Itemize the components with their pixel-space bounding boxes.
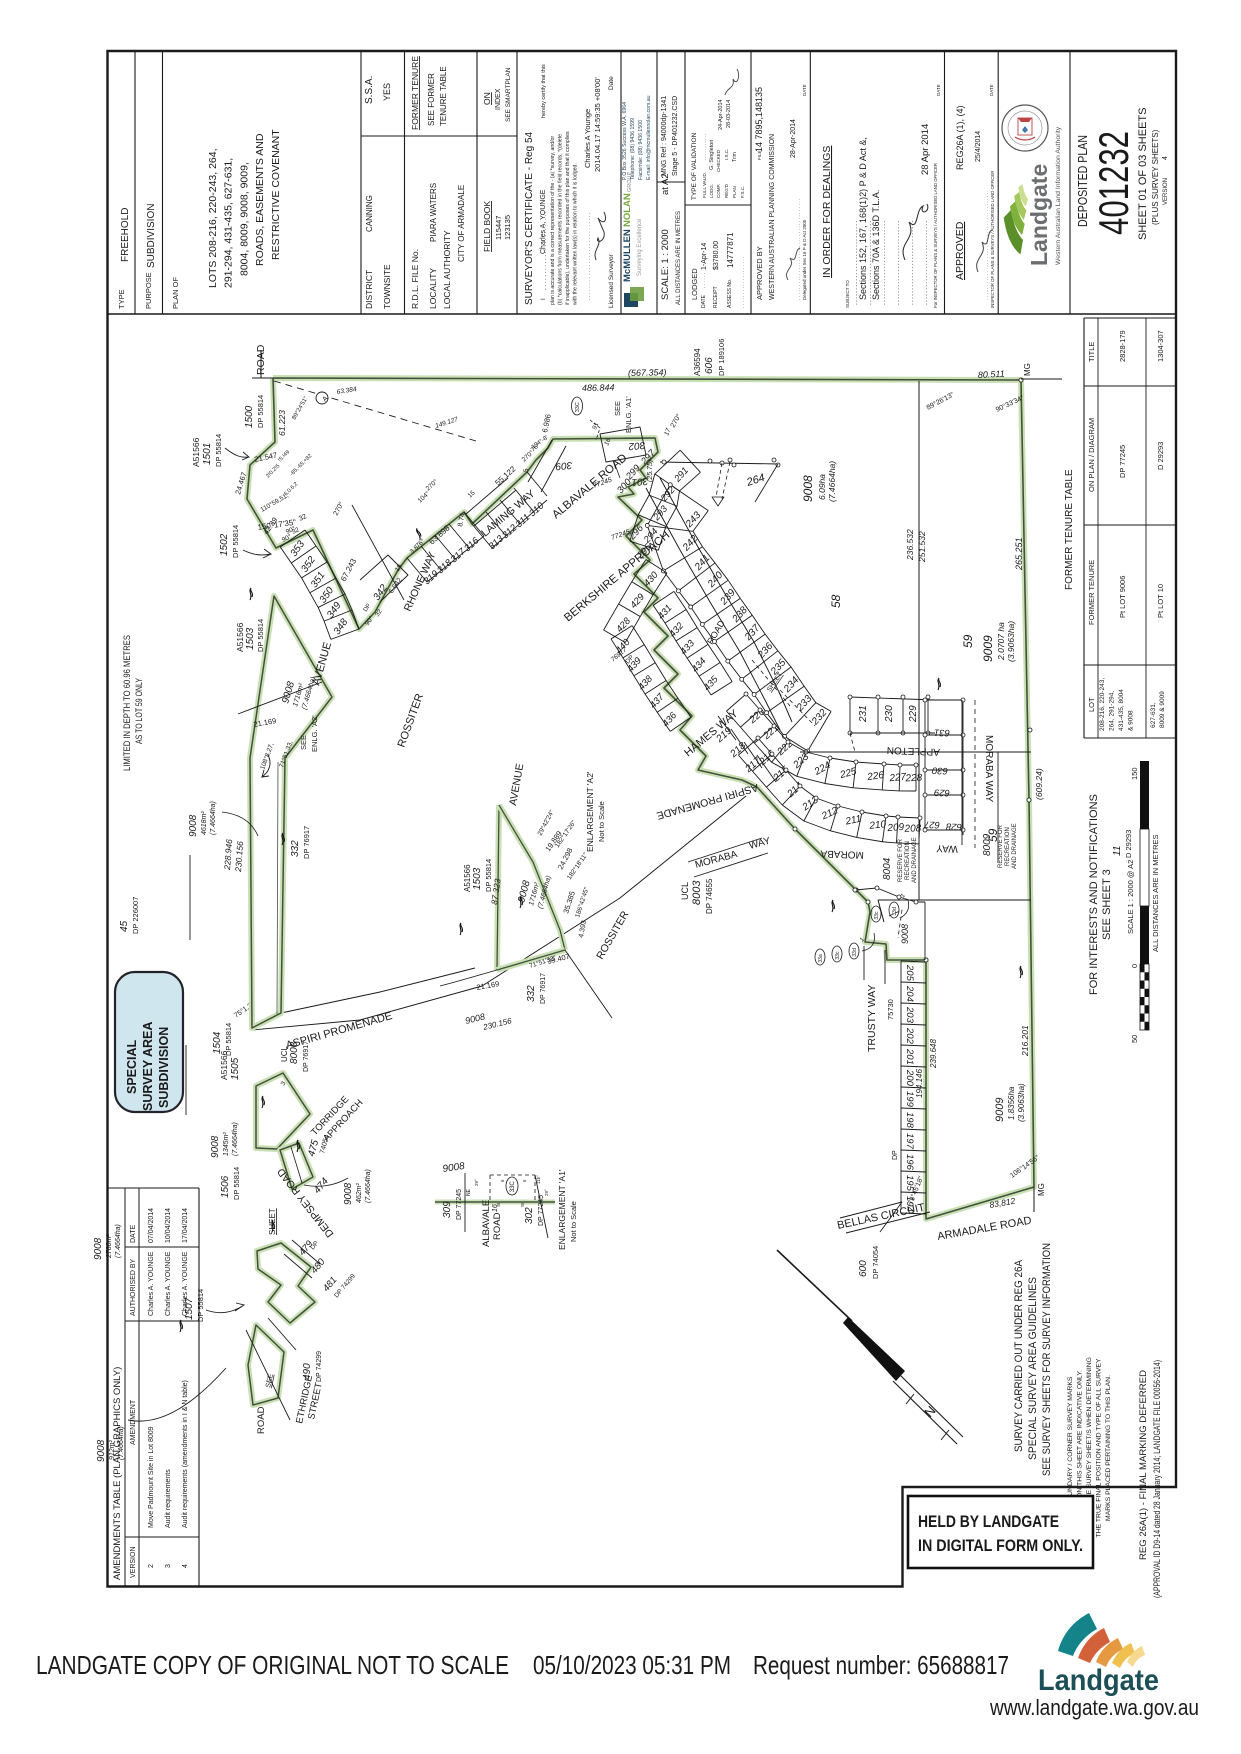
svg-text:FORMER TENURE: FORMER TENURE [410,56,420,130]
svg-text:if inapplicable), undertaken f: if inapplicable), undertaken for the pur… [565,131,571,305]
svg-text:07/04/2014: 07/04/2014 [148,1208,155,1243]
svg-text:33d: 33d [892,907,898,916]
svg-text:33C: 33C [510,1181,516,1193]
svg-text:401232: 401232 [1090,131,1137,235]
svg-text:(b) *calculations from measur: (b) *calculations from measurements reco… [558,134,564,305]
svg-text:SEE SMARTPLAN: SEE SMARTPLAN [505,67,512,122]
svg-text:1.8356ha: 1.8356ha [1007,1086,1016,1120]
svg-text:RESERVE FOR: RESERVE FOR [898,838,904,882]
svg-text:DP 77245: DP 77245 [1118,445,1127,478]
svg-text:Not to Scale: Not to Scale [569,1201,578,1242]
svg-text:209: 209 [886,822,905,834]
svg-text:265.251: 265.251 [1014,537,1024,571]
svg-text:THE TRUE FINAL POSITION AND TY: THE TRUE FINAL POSITION AND TYPE OF ALL … [1096,1358,1103,1537]
svg-text:hereby certify that this: hereby certify that this [541,64,547,118]
svg-text:Landgate: Landgate [1026,164,1052,266]
svg-text:204: 204 [904,985,915,1002]
svg-text:332: 332 [526,985,537,1002]
svg-text:D 29293: D 29293 [1124,830,1133,858]
svg-text:Licensed Surveyor: Licensed Surveyor [608,253,615,308]
svg-text:25/4/2014: 25/4/2014 [975,131,982,162]
svg-text:AND DRAINAGE: AND DRAINAGE [1012,823,1018,869]
svg-text:(APPROVAL ID D9-14 dated 28 Ja: (APPROVAL ID D9-14 dated 28 January 2014… [1152,1360,1162,1598]
svg-text:SEE: SEE [613,401,622,416]
svg-text:4618m²: 4618m² [201,811,208,835]
svg-text:DP 74054: DP 74054 [871,1246,880,1279]
svg-text:ASSESS No.: ASSESS No. [727,279,733,308]
svg-text:PIARA WATERS: PIARA WATERS [429,183,438,242]
svg-text:ENLARGEMENT 'A2': ENLARGEMENT 'A2' [585,771,595,852]
svg-text:LIMITED IN DEPTH TO 60.96 METR: LIMITED IN DEPTH TO 60.96 METRES [122,635,132,771]
svg-text:28 Apr 2014: 28 Apr 2014 [920,124,931,175]
svg-text:AUTHORISED BY: AUTHORISED BY [130,1258,137,1316]
svg-text:ENLG. 'A1': ENLG. 'A1' [624,396,633,433]
svg-text:APPROVED: APPROVED [954,221,966,280]
svg-text:8009 & 9009: 8009 & 9009 [1159,691,1166,728]
svg-text:431-435, 8004: 431-435, 8004 [1118,689,1125,731]
svg-text:DATE: DATE [802,84,807,96]
svg-text:IN DIGITAL FORM ONLY.: IN DIGITAL FORM ONLY. [918,1537,1083,1555]
svg-text:Charles A. YOUNGE: Charles A. YOUNGE [148,1251,155,1316]
svg-text:14 7895,148135: 14 7895,148135 [754,87,764,152]
svg-text:DP 189106: DP 189106 [717,339,726,376]
svg-text:Audit requirements: Audit requirements [165,1469,172,1528]
svg-text:210: 210 [868,819,887,832]
svg-text:plan is accurate and is a corr: plan is accurate and is a correct repres… [550,136,556,305]
svg-text:199: 199 [904,1091,915,1108]
svg-text:WAY: WAY [936,842,958,854]
svg-text:SURVEYOR'S CERTIFICATE - Reg 5: SURVEYOR'S CERTIFICATE - Reg 54 [524,131,535,305]
svg-text:LOCAL AUTHORITY: LOCAL AUTHORITY [442,230,452,309]
svg-text:24-Apr-2014: 24-Apr-2014 [718,99,724,130]
svg-text:45: 45 [119,920,130,932]
svg-text:REG26A (1), (4): REG26A (1), (4) [955,105,965,170]
svg-text:A51566: A51566 [219,1050,229,1080]
svg-text:& 9008: & 9008 [1128,710,1135,731]
svg-text:SURVEY CARRIED OUT UNDER REG 2: SURVEY CARRIED OUT UNDER REG 26A [1013,1259,1025,1452]
svg-text:FIELD BOOK: FIELD BOOK [482,201,492,252]
svg-text:LANDGATE COPY OF ORIGINAL NOT: LANDGATE COPY OF ORIGINAL NOT TO SCALE [36,1650,509,1680]
svg-text:AMENDMENTS TABLE (PLAN GRAPHI: AMENDMENTS TABLE (PLAN GRAPHICS ONLY) [112,1367,123,1580]
svg-text:SI: SI [520,1203,525,1207]
svg-text:291-294, 431-435, 627-631,: 291-294, 431-435, 627-631, [223,158,235,288]
svg-text:627-631,: 627-631, [1150,702,1157,728]
svg-text:. . . . . . . . . . . . . . .: . . . . . . . . . . . . . . . . . . . . … [586,212,592,300]
svg-text:ON PLAN / DIAGRAM: ON PLAN / DIAGRAM [1087,418,1096,492]
svg-text:DP 76917: DP 76917 [540,973,547,1004]
svg-text:For INSPECTOR OF PLANS & SURVE: For INSPECTOR OF PLANS & SURVEYS / AUTHO… [933,163,938,308]
svg-text:912m²: 912m² [109,1439,116,1460]
svg-text:208: 208 [903,823,921,835]
svg-text:FORMER TENURE: FORMER TENURE [1087,560,1096,625]
svg-text:251.532: 251.532 [917,531,927,563]
svg-text:RECREATION: RECREATION [1005,827,1011,866]
svg-text:UCL: UCL [280,1045,289,1062]
svg-text:$3780.00: $3780.00 [713,241,720,270]
svg-text:462m²: 462m² [356,1182,363,1203]
svg-text:DATE: DATE [989,84,994,96]
svg-text:D 29293: D 29293 [1156,442,1165,470]
svg-text:2: 2 [148,1564,155,1568]
svg-text:PLAN: PLAN [732,186,737,198]
svg-text:I.S.C.: I.S.C. [724,149,729,160]
svg-text:A51566: A51566 [191,437,201,467]
svg-text:SUBDIVISION: SUBDIVISION [146,204,157,268]
svg-text:Surveying Excellence: Surveying Excellence [637,218,643,276]
svg-text:1502: 1502 [219,533,230,556]
svg-text:2014.04.17 14:59:35 +08'00': 2014.04.17 14:59:35 +08'00' [593,77,602,172]
svg-text:www.landgate.wa.gov.au: www.landgate.wa.gov.au [989,1695,1199,1720]
svg-text:(7.4664ha): (7.4664ha) [827,461,837,502]
svg-text:14777871: 14777871 [726,232,735,268]
svg-text:600: 600 [858,1260,869,1277]
svg-text:Charles A. YOUNGE: Charles A. YOUNGE [540,189,547,254]
svg-text:1500: 1500 [244,405,255,428]
svg-text:LOT: LOT [1087,697,1096,712]
svg-text:ON: ON [482,92,492,105]
svg-text:(PLUS SURVEY SHEETS): (PLUS SURVEY SHEETS) [1151,129,1160,225]
svg-text:Move Padmount Site in Lot 8009: Move Padmount Site in Lot 8009 [148,1426,155,1528]
svg-text:PURPOSE: PURPOSE [144,272,153,309]
svg-text:DP 226007: DP 226007 [131,897,140,934]
svg-text:MORABA WAY: MORABA WAY [983,735,994,803]
svg-text:RECEIPT: RECEIPT [713,286,719,308]
svg-text:DP 55814: DP 55814 [231,525,240,558]
svg-text:8008: 8008 [289,1041,300,1064]
svg-text:486.844: 486.844 [582,382,615,393]
svg-text:28-Apr-2014: 28-Apr-2014 [790,119,797,158]
svg-text:200: 200 [904,1069,915,1087]
svg-text:SEE SURVEY SHEETS FOR SURVEY I: SEE SURVEY SHEETS FOR SURVEY INFORMATION [1041,1243,1053,1476]
svg-text:205: 205 [904,964,915,982]
svg-text:IN ORDER FOR DEALINGS: IN ORDER FOR DEALINGS [821,146,833,278]
svg-text:58: 58 [829,594,843,608]
svg-text:309: 309 [555,459,573,471]
svg-text:9008: 9008 [210,1135,221,1158]
svg-text:DP 55814: DP 55814 [196,1289,205,1322]
svg-text:DP 55814: DP 55814 [214,434,223,467]
svg-text:302: 302 [628,439,646,451]
svg-text:SHEET 01 OF 03 SHEETS: SHEET 01 OF 03 SHEETS [1137,108,1149,240]
svg-text:1501: 1501 [202,443,213,465]
svg-text:630: 630 [931,764,948,776]
svg-text:INSPECTOR OF PLANS & SURVEYS /: INSPECTOR OF PLANS & SURVEYS / AUTHORISE… [990,171,995,308]
svg-text:239.648: 239.648 [929,1039,938,1069]
svg-text:Pt LOT 9006: Pt LOT 9006 [1118,576,1127,618]
svg-text:(567.354): (567.354) [628,367,667,378]
svg-text:AND DRAINAGE: AND DRAINAGE [912,837,918,883]
svg-text:Trim: Trim [732,152,738,162]
svg-text:6.09ha: 6.09ha [817,474,827,500]
svg-text:264, 291-294,: 264, 291-294, [1109,691,1116,731]
svg-text:8004, 8009, 9008, 9009,: 8004, 8009, 9008, 9009, [238,162,250,276]
svg-text:228: 228 [904,773,923,785]
svg-text:CANNING: CANNING [365,195,374,232]
svg-text:DP 76917: DP 76917 [302,826,311,859]
svg-text:TYPE: TYPE [117,289,126,309]
svg-text:DP 77245: DP 77245 [456,1189,463,1220]
svg-text:ALL DISTANCES ARE IN METRES: ALL DISTANCES ARE IN METRES [1151,834,1160,952]
svg-text:4: 4 [182,1564,189,1568]
svg-text:SUBJECT TO: SUBJECT TO [845,280,850,308]
svg-text:MNG Ref : 94000dp-1341: MNG Ref : 94000dp-1341 [661,96,668,176]
svg-text:PLAN OF: PLAN OF [171,276,180,309]
svg-text:(7.4664ha): (7.4664ha) [118,1426,125,1460]
svg-text:DP 76917: DP 76917 [303,1041,310,1072]
svg-text:TRUSTY WAY: TRUSTY WAY [866,985,878,1052]
svg-text:MG: MG [1037,1183,1046,1196]
svg-text:203: 203 [904,1006,915,1024]
svg-text:33a: 33a [818,954,824,963]
svg-text:1504: 1504 [212,1031,223,1054]
svg-text:309: 309 [442,1201,453,1218]
svg-text:123135: 123135 [503,215,512,240]
svg-text:DATE: DATE [701,294,707,308]
svg-text:ROAD: ROAD [492,1212,503,1240]
svg-text:8004: 8004 [882,857,893,880]
svg-text:Telephone: (08) 9436 1599: Telephone: (08) 9436 1599 [630,118,636,180]
svg-text:ROAD: ROAD [256,1406,267,1434]
svg-text:1304-307: 1304-307 [1156,330,1165,362]
svg-text:302: 302 [524,1207,535,1224]
svg-text:E-mail: info@mcmullennolan.com: E-mail: info@mcmullennolan.com.au [646,95,652,180]
svg-text:1345m²: 1345m² [223,1132,230,1156]
svg-text:SPECIAL SURVEY AREA GUIDELINES: SPECIAL SURVEY AREA GUIDELINES [1027,1277,1039,1460]
svg-text:Charles A. YOUNGE: Charles A. YOUNGE [165,1251,172,1316]
svg-text:NOLAN: NOLAN [622,193,633,227]
svg-text:202: 202 [904,1027,915,1045]
svg-text:FULL VALID.: FULL VALID. [702,172,707,198]
svg-text:332: 332 [290,840,301,857]
svg-text:Not to Scale: Not to Scale [597,801,606,842]
svg-text:33c: 33c [835,951,841,960]
svg-text:SEE: SEE [299,735,308,750]
svg-text:REG 26A(1) - FINAL MARKING DEF: REG 26A(1) - FINAL MARKING DEFERRED [1138,1369,1148,1560]
svg-text:10/04/2014: 10/04/2014 [165,1208,172,1243]
svg-text:631: 631 [934,726,950,738]
svg-text:227: 227 [888,772,907,785]
svg-text:9008: 9008 [96,1439,107,1462]
svg-text:R.D.L. FILE No.: R.D.L. FILE No. [410,249,420,309]
svg-text:MORABA: MORABA [820,847,864,860]
svg-text:Charles A Younge: Charles A Younge [583,109,592,168]
svg-text:150: 150 [1130,767,1139,780]
svg-text:8003: 8003 [691,880,703,905]
svg-text:9008: 9008 [900,924,910,944]
svg-text:(3.9063ha): (3.9063ha) [1006,621,1016,662]
svg-text:COMP.: COMP. [716,184,721,198]
svg-text:REG'D: REG'D [724,183,729,198]
svg-text:A51566: A51566 [463,864,472,892]
svg-text:2828-179: 2828-179 [1118,330,1127,362]
svg-text:TITLE: TITLE [1087,342,1096,362]
svg-text:201: 201 [904,1048,915,1065]
svg-text:AMENDMENT: AMENDMENT [130,1399,137,1445]
svg-text:ROADS, EASEMENTS AND: ROADS, EASEMENTS AND [254,133,266,266]
svg-text:194.146: 194.146 [915,1069,924,1098]
svg-text:LOTS 208-216, 220-243, 264,: LOTS 208-216, 220-243, 264, [207,148,219,288]
svg-text:APPLETON: APPLETON [887,744,941,757]
svg-text:17/04/2014: 17/04/2014 [182,1208,189,1243]
svg-text:- - - - - - - - - - - - - - -: - - - - - - - - - - - - - - - - - - - - … [882,221,888,305]
svg-text:DATE: DATE [936,84,941,96]
svg-text:1503: 1503 [245,627,256,650]
svg-text:S.S.A.: S.S.A. [364,76,375,104]
svg-text:LODGED: LODGED [690,268,699,300]
svg-text:629: 629 [933,786,950,798]
svg-text:DP 77245: DP 77245 [538,1195,545,1226]
svg-text:9008: 9008 [93,1237,104,1260]
svg-text:SI: SI [496,1203,501,1207]
svg-text:APPROVED BY: APPROVED BY [755,246,764,300]
svg-text:MG: MG [1023,363,1032,376]
svg-text:F.S.C.: F.S.C. [740,186,745,198]
svg-text:. . . . . . . . . . . . . . .: . . . . . . . . . . . . . . . . . . . [740,257,746,308]
svg-text:05/10/2023 05:31 PM: 05/10/2023 05:31 PM [533,1650,731,1680]
svg-text:1-Apr-14: 1-Apr-14 [701,243,708,270]
svg-text:A51566: A51566 [235,622,245,652]
svg-text:1503: 1503 [472,867,483,890]
svg-text:McMULLEN: McMULLEN [622,229,633,282]
svg-text:1505: 1505 [230,1057,241,1080]
svg-text:Western Australian Land Inform: Western Australian Land Information Auth… [1055,126,1062,265]
svg-text:. . . . . . . . . . .: . . . . . . . . . . . [702,134,707,160]
svg-text:DEPOSITED PLAN: DEPOSITED PLAN [1075,135,1090,227]
svg-text:80.511: 80.511 [978,369,1005,380]
svg-text:(7.4664ha): (7.4664ha) [210,801,217,835]
svg-text:33c: 33c [874,911,880,920]
svg-text:FOR INTERESTS AND NOTIFICATION: FOR INTERESTS AND NOTIFICATIONS [1088,794,1100,995]
svg-text:236.532: 236.532 [905,529,915,561]
svg-text:(609.24): (609.24) [1034,768,1044,800]
svg-text:Date: Date [608,76,615,90]
svg-text:DP 74299: DP 74299 [316,1351,323,1382]
svg-text:ALBAVALE: ALBAVALE [481,1200,492,1247]
svg-text:1507: 1507 [184,1297,195,1320]
svg-text:G. Singleton: G. Singleton [709,140,715,170]
svg-text:59: 59 [961,634,975,648]
svg-text:230: 230 [884,705,895,723]
svg-text:28-03-2014: 28-03-2014 [726,100,732,128]
svg-text:VERSION: VERSION [1163,178,1169,205]
svg-text:1506: 1506 [220,1175,231,1198]
svg-text:LOCALITY: LOCALITY [428,268,438,309]
svg-text:11b°: 11b° [536,1175,541,1184]
svg-text:FORMER TENURE TABLE: FORMER TENURE TABLE [1064,469,1075,590]
svg-text:TENURE TABLE: TENURE TABLE [439,66,448,126]
svg-text:606: 606 [704,357,715,374]
svg-text:with the relevant written law(: with the relevant written law(s) in rela… [573,163,579,305]
svg-text:. . . . . .: . . . . . . [701,273,707,288]
svg-text:(7.4664ha): (7.4664ha) [232,1122,239,1156]
svg-text:FREEHOLD: FREEHOLD [120,208,131,262]
svg-text:Sections 70A & 136D T.L.A.: Sections 70A & 136D T.L.A. [871,190,881,300]
svg-text:Delegated under Sec 16 P & D A: Delegated under Sec 16 P & D Act 2005 [802,219,807,300]
svg-text:DP 55814: DP 55814 [256,619,265,652]
svg-text:TYPE OF VALIDATION: TYPE OF VALIDATION [691,132,698,200]
svg-text:YES: YES [382,83,392,101]
svg-text:Facsimile: (08) 9436 1500: Facsimile: (08) 9436 1500 [638,120,644,180]
svg-text:HELD BY LANDGATE: HELD BY LANDGATE [918,1513,1059,1531]
svg-text:Request number: 65688817: Request number: 65688817 [753,1650,1009,1680]
svg-text:208-216, 220-243,: 208-216, 220-243, [1099,678,1106,731]
svg-text:DP 74655: DP 74655 [705,878,714,914]
svg-text:Stage 5 - DP401232.CSD: Stage 5 - DP401232.CSD [672,96,679,176]
svg-text:196: 196 [904,1154,915,1171]
svg-text:9008: 9008 [801,475,815,502]
svg-text:11: 11 [1112,846,1123,856]
svg-text:50: 50 [1130,1035,1139,1043]
svg-text:Landgate: Landgate [1038,1664,1159,1697]
svg-text:3: 3 [165,1564,172,1568]
svg-text:NE: NE [466,1188,472,1196]
svg-text:29°: 29° [544,1189,549,1196]
svg-text:9009: 9009 [994,1098,1006,1122]
svg-text:- - - - - - - - - - - - - - -: - - - - - - - - - - - - - - - - - - - - … [896,221,902,305]
svg-text:DISTRICT: DISTRICT [364,270,374,309]
svg-text:SUBDIVISION: SUBDIVISION [157,1027,171,1108]
svg-text:2.0707 ha: 2.0707 ha [996,622,1006,661]
svg-text:216.201: 216.201 [1020,1025,1030,1057]
svg-text:DATE: DATE [130,1225,137,1243]
svg-text:61.223: 61.223 [277,410,287,436]
svg-text:75730: 75730 [886,999,895,1020]
svg-text:229: 229 [908,705,919,723]
svg-text:SEE FORMER: SEE FORMER [427,73,436,126]
svg-text:115447: 115447 [494,216,503,240]
svg-text:SCALE: 1 : 2000: SCALE: 1 : 2000 [660,229,671,300]
svg-text:CITY OF ARMADALE: CITY OF ARMADALE [457,185,466,262]
svg-text:VERSION: VERSION [130,1546,137,1578]
svg-text:SCALE 1 : 2000 @ A2: SCALE 1 : 2000 @ A2 [1126,860,1135,934]
svg-text:AS TO LOT 59 ONLY: AS TO LOT 59 ONLY [134,678,144,744]
svg-text:627: 627 [923,818,940,830]
svg-text:59: 59 [986,828,1000,842]
svg-text:29°: 29° [474,1179,479,1186]
svg-text:DP: DP [892,1150,899,1160]
svg-text:A36594: A36594 [693,348,702,376]
svg-text:SPECIAL: SPECIAL [125,1039,139,1094]
svg-text:ROAD: ROAD [255,344,267,375]
svg-text:DP 55814: DP 55814 [232,1167,241,1200]
svg-text:LODG.: LODG. [709,184,714,198]
svg-text:0: 0 [1130,964,1139,968]
svg-text:WESTERN AUSTRALIAN PLANNING CO: WESTERN AUSTRALIAN PLANNING COMMISSION [769,134,776,300]
svg-text:(7.4664ha): (7.4664ha) [115,1224,122,1258]
svg-text:33C: 33C [575,402,581,412]
svg-text:Pt LOT 10: Pt LOT 10 [1156,584,1165,618]
svg-text:9008: 9008 [343,1182,354,1205]
svg-text:SURVEY AREA: SURVEY AREA [141,1022,155,1111]
svg-text:INDEX: INDEX [495,88,502,110]
svg-text:TOWNSITE: TOWNSITE [382,264,392,309]
svg-text:- - - - - - - - - - - - - - -: - - - - - - - - - - - - - - - - - - - - … [924,221,930,305]
svg-text:UCL: UCL [680,882,690,900]
svg-text:CHECKED: CHECKED [716,149,721,172]
svg-text:33d: 33d [852,948,858,957]
svg-text:628: 628 [945,820,962,832]
svg-text:RESTRICTIVE COVENANT: RESTRICTIVE COVENANT [270,129,282,260]
svg-text:ENLG. 'A2': ENLG. 'A2' [310,715,319,752]
svg-text:(3.9063ha): (3.9063ha) [1017,1083,1026,1122]
svg-text:197: 197 [904,1133,915,1150]
svg-text:9009: 9009 [981,635,995,662]
svg-text:MARKS PLACED PERTAINING TO THI: MARKS PLACED PERTAINING TO THIS PLAN. [1105,1375,1112,1521]
svg-text:P.O Box 3526 Success W.A. 6: P.O Box 3526 Success W.A. 6964 [622,102,628,180]
svg-text:198: 198 [904,1112,915,1129]
svg-text:ENLARGEMENT 'A1': ENLARGEMENT 'A1' [557,1169,567,1250]
svg-text:(7.4664ha): (7.4664ha) [365,1169,372,1203]
